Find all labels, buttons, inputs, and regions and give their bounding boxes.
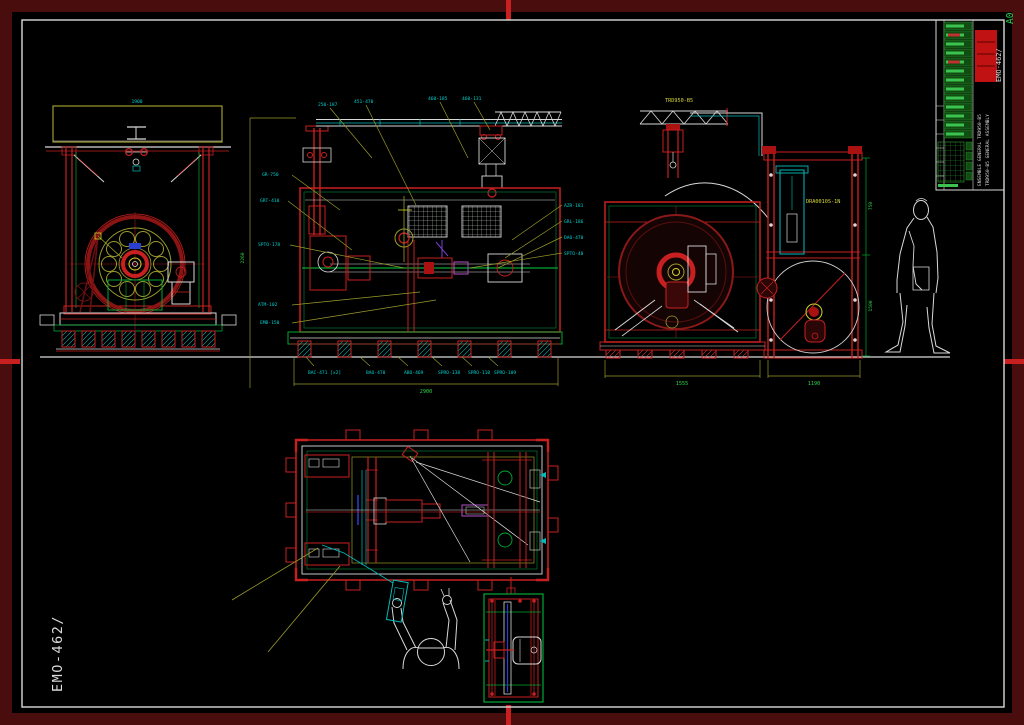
callout: EMB-150 — [260, 320, 280, 326]
dim-height: 2260 — [240, 252, 246, 263]
callout: GRT-410 — [260, 198, 280, 204]
callout: GR-750 — [262, 172, 279, 178]
cad-drawing-sheet: A0 EMO-462/ EMO-462/ ENSEMBLE GENERAL TR… — [0, 0, 1024, 725]
center-tick-top — [506, 0, 511, 20]
callout: 451-470 — [354, 99, 374, 105]
callout: SPTO-40 — [564, 251, 584, 257]
label-chute: DRA0010S-1N — [806, 199, 840, 205]
mesh-panel-2 — [462, 206, 501, 237]
callout: SPRO-109 — [494, 370, 516, 376]
title-line2: TRD950-B5 GENERAL ASSEMBLY — [985, 114, 991, 186]
dim-reel-lower: 1500 — [868, 300, 874, 311]
center-tick-bottom — [506, 705, 511, 725]
callout: BAC-471 [x2] — [308, 370, 341, 376]
sheet-format-label: A0 — [1005, 12, 1016, 24]
dim-width: 2900 — [420, 389, 433, 395]
margin-drawing-number: EMO-462/ — [50, 615, 66, 692]
callout: SPRO-138 — [438, 370, 460, 376]
callout: 460-131 — [462, 96, 482, 102]
callout: SPRO-110 — [468, 370, 490, 376]
scale-row — [938, 184, 958, 187]
title-block-grid-panel — [938, 142, 964, 182]
callout: AZR-181 — [564, 203, 584, 209]
callout: 250-187 — [318, 102, 338, 108]
callout: ATM-102 — [258, 302, 278, 308]
dim-reel-width: 1190 — [808, 381, 821, 387]
title-block-number: EMO-462/ — [995, 48, 1003, 82]
center-tick-left — [0, 359, 20, 364]
center-tick-right — [1004, 359, 1024, 364]
mesh-panel-1 — [408, 206, 447, 237]
label-hoist: TRD950-B5 — [665, 98, 693, 104]
callout: DAO-470 — [564, 235, 584, 241]
callout: GRL-186 — [564, 219, 584, 225]
callout: 460-185 — [428, 96, 448, 102]
callout: BAO-470 — [366, 370, 386, 376]
dim-view1-width: 1900 — [131, 99, 142, 105]
callout: SPTO-178 — [258, 242, 280, 248]
drum-top-guide — [129, 243, 141, 249]
page-border — [0, 0, 1024, 725]
title-line1: ENSEMBLE GENERAL TRD950-B5 — [977, 114, 983, 186]
dim-reel-upper: 750 — [868, 202, 874, 211]
dim-view3-width: 1555 — [676, 381, 689, 387]
company-logo — [975, 30, 997, 82]
cad-canvas: A0 EMO-462/ EMO-462/ ENSEMBLE GENERAL TR… — [0, 0, 1024, 725]
callout: ABO-469 — [404, 370, 424, 376]
